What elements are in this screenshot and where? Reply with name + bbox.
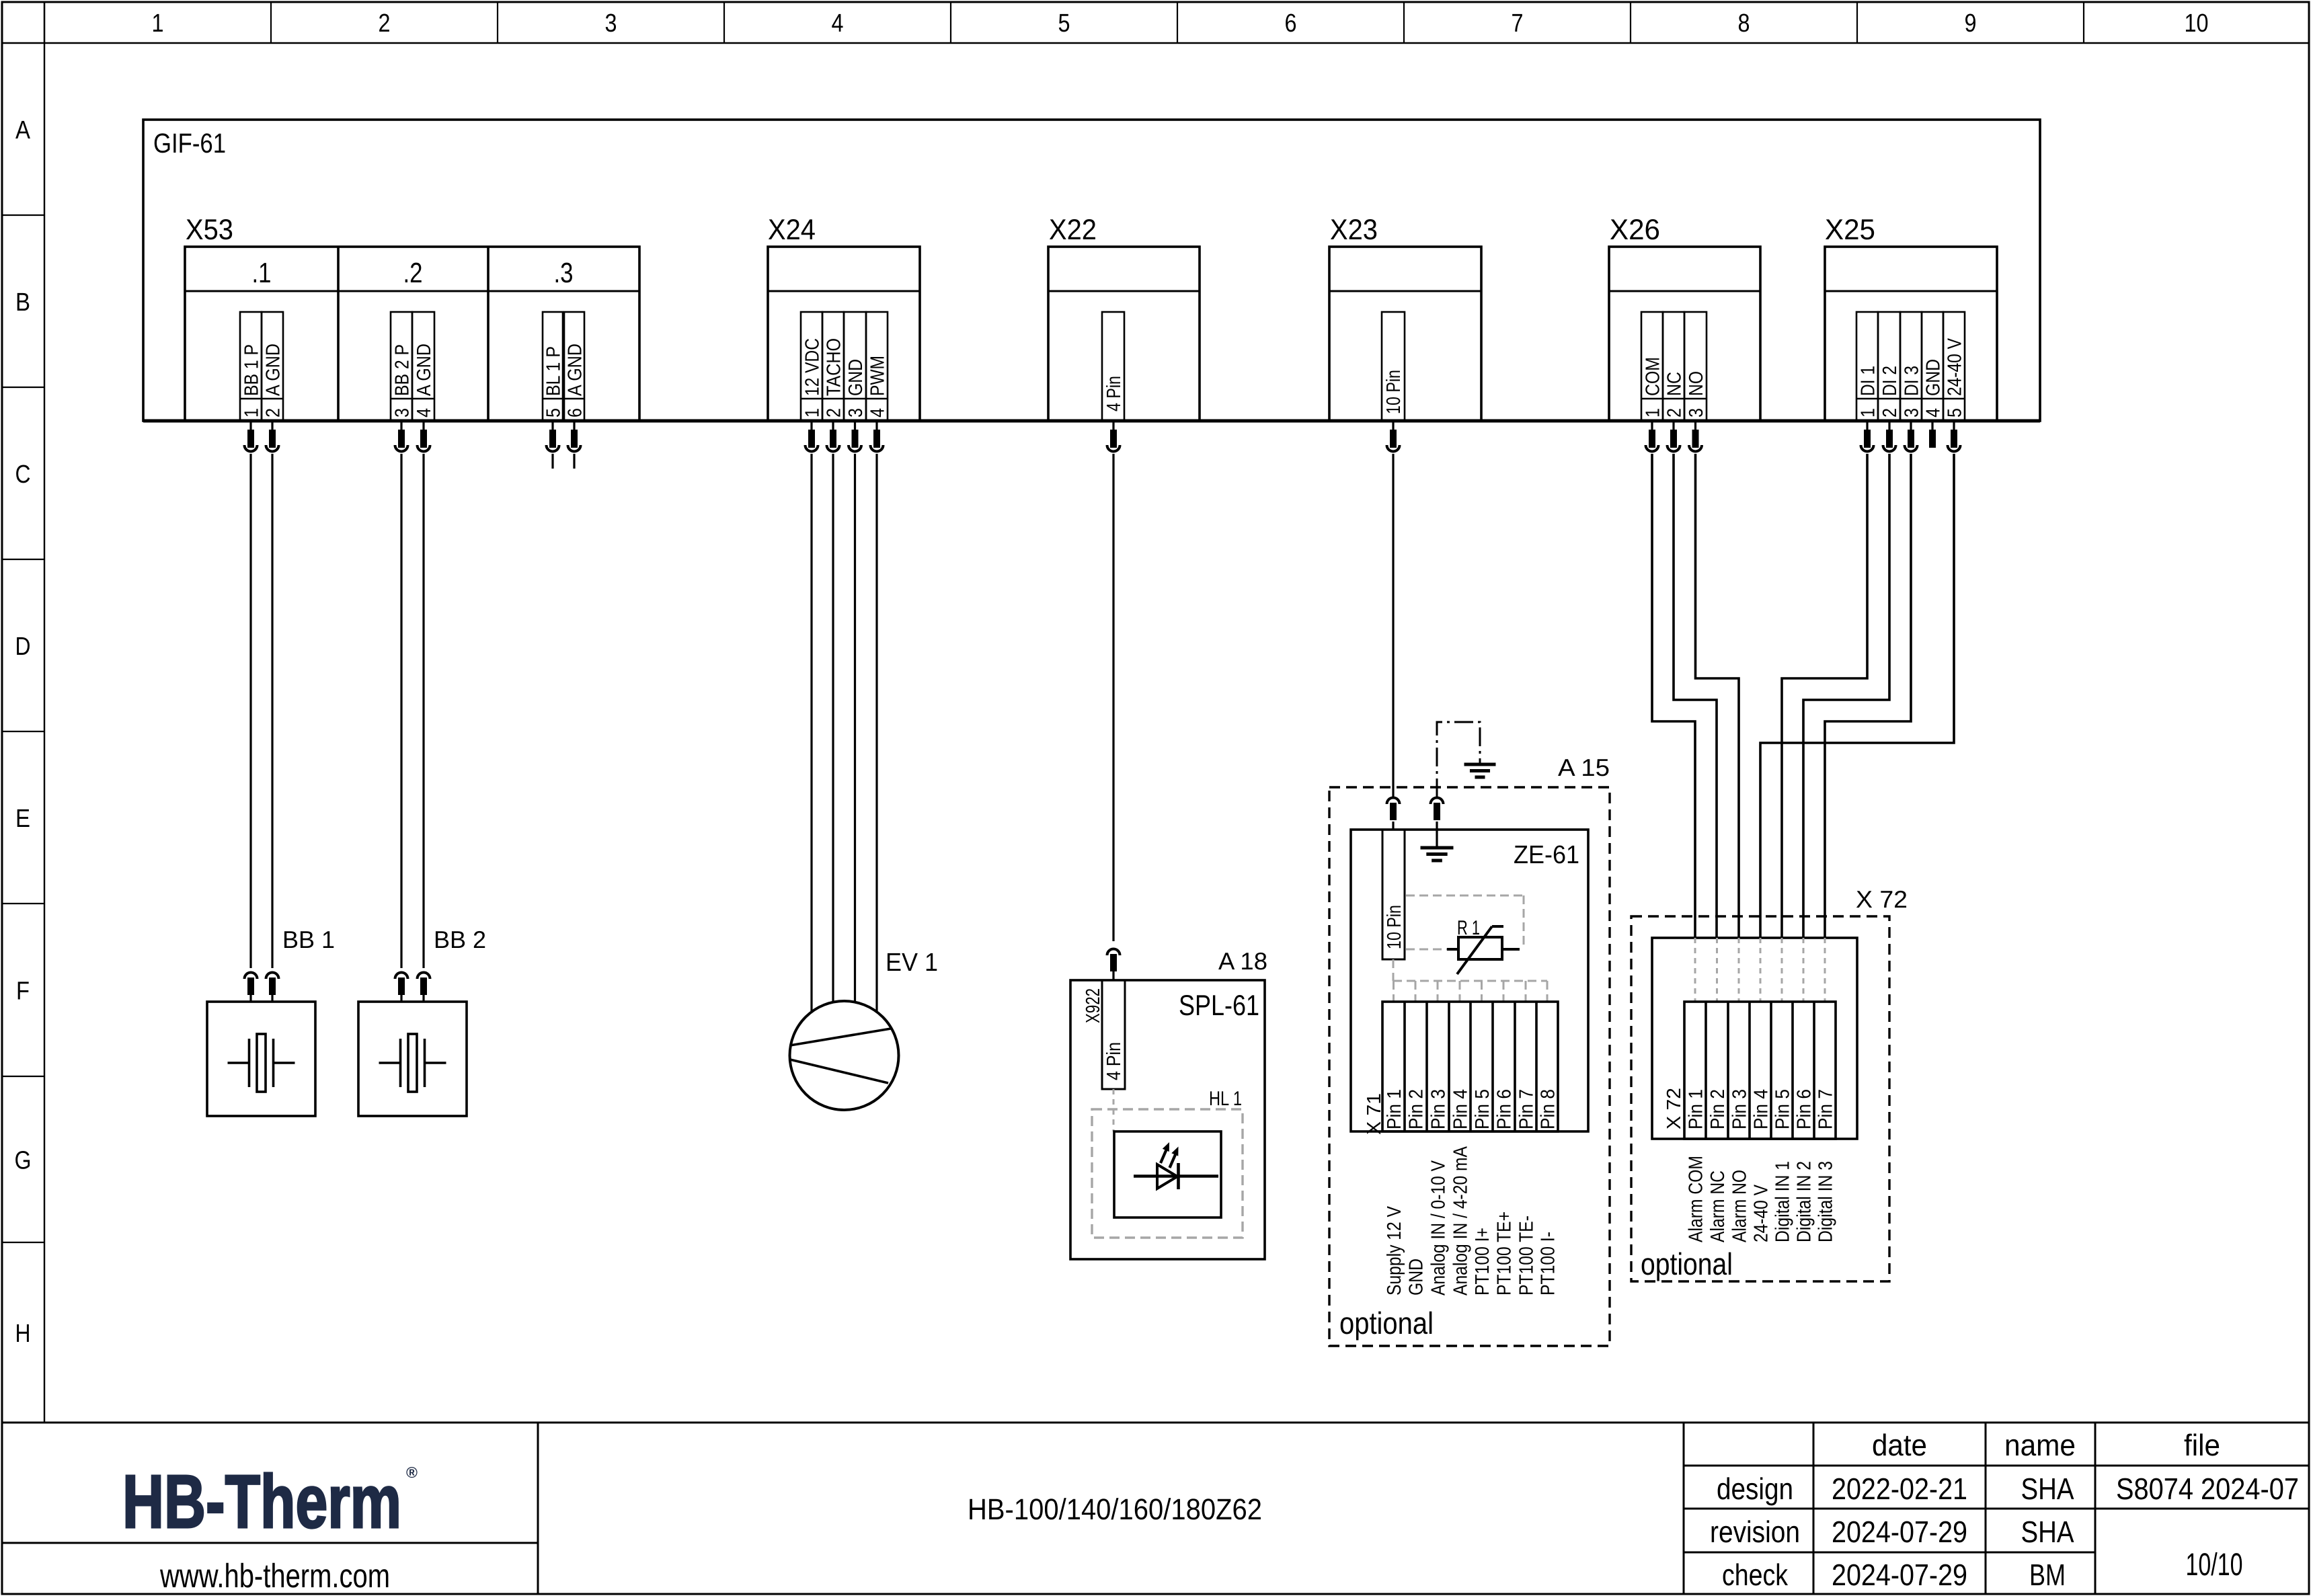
svg-text:DI 2: DI 2 — [1879, 366, 1901, 396]
svg-text:NO: NO — [1686, 371, 1707, 396]
svg-text:4 Pin: 4 Pin — [1103, 1042, 1125, 1080]
svg-text:Analog IN / 0-10 V: Analog IN / 0-10 V — [1428, 1160, 1450, 1295]
svg-text:Pin 1: Pin 1 — [1384, 1089, 1405, 1129]
svg-text:8: 8 — [1738, 9, 1750, 38]
svg-text:12 VDC: 12 VDC — [802, 338, 824, 396]
svg-text:2024-07-29: 2024-07-29 — [1832, 1515, 1967, 1549]
svg-text:7: 7 — [1512, 9, 1524, 38]
svg-text:BB 1: BB 1 — [282, 926, 335, 953]
svg-text:B: B — [15, 288, 30, 317]
svg-text:optional: optional — [1641, 1246, 1733, 1281]
svg-text:F: F — [16, 977, 30, 1006]
svg-text:4: 4 — [1923, 408, 1945, 417]
svg-text:file: file — [2184, 1428, 2220, 1462]
svg-text:Alarm NC: Alarm NC — [1707, 1170, 1729, 1242]
svg-text:S8074 2024-07: S8074 2024-07 — [2116, 1472, 2299, 1506]
svg-text:C: C — [15, 461, 31, 489]
svg-text:X 71: X 71 — [1364, 1093, 1385, 1135]
svg-text:X22: X22 — [1049, 214, 1097, 246]
svg-text:1: 1 — [802, 408, 824, 417]
svg-text:1: 1 — [241, 408, 263, 417]
svg-text:date: date — [1872, 1428, 1927, 1462]
svg-text:ZE-61: ZE-61 — [1514, 841, 1579, 869]
svg-text:2: 2 — [1664, 408, 1686, 417]
svg-text:Analog IN / 4-20 mA: Analog IN / 4-20 mA — [1450, 1146, 1472, 1295]
svg-text:design: design — [1717, 1472, 1793, 1506]
svg-text:3: 3 — [1902, 408, 1923, 417]
svg-text:1: 1 — [1858, 408, 1879, 417]
svg-text:10 Pin: 10 Pin — [1384, 905, 1405, 949]
svg-text:4: 4 — [414, 408, 435, 417]
svg-text:name: name — [2004, 1428, 2076, 1462]
svg-text:GIF-61: GIF-61 — [153, 128, 226, 159]
svg-text:HB-Therm: HB-Therm — [122, 1460, 401, 1544]
svg-text:10 Pin: 10 Pin — [1383, 370, 1405, 414]
svg-text:DI 1: DI 1 — [1858, 366, 1879, 396]
svg-text:BB 1 P: BB 1 P — [241, 344, 263, 396]
svg-text:2022-02-21: 2022-02-21 — [1832, 1472, 1967, 1506]
svg-text:SHA: SHA — [2021, 1515, 2074, 1549]
svg-text:1: 1 — [1643, 408, 1664, 417]
svg-text:Alarm NO: Alarm NO — [1729, 1170, 1751, 1242]
svg-text:Digital IN 2: Digital IN 2 — [1794, 1161, 1815, 1242]
svg-text:®: ® — [406, 1464, 418, 1481]
svg-text:24-40 V: 24-40 V — [1945, 337, 1966, 396]
svg-text:Pin 6: Pin 6 — [1794, 1089, 1815, 1129]
svg-text:Pin 1: Pin 1 — [1686, 1089, 1707, 1129]
svg-text:.2: .2 — [403, 257, 423, 288]
svg-text:24-40 V: 24-40 V — [1751, 1184, 1772, 1242]
svg-text:GND: GND — [845, 359, 867, 396]
svg-text:www.hb-therm.com: www.hb-therm.com — [159, 1557, 390, 1595]
svg-text:X 72: X 72 — [1856, 885, 1908, 913]
svg-text:X26: X26 — [1610, 214, 1660, 246]
svg-text:6: 6 — [565, 408, 586, 417]
svg-text:X24: X24 — [768, 214, 816, 246]
svg-text:G: G — [15, 1147, 32, 1175]
svg-text:2: 2 — [379, 9, 391, 38]
svg-text:10: 10 — [2185, 9, 2209, 38]
svg-text:.3: .3 — [554, 257, 574, 288]
svg-text:3: 3 — [845, 408, 867, 417]
svg-text:NC: NC — [1664, 372, 1686, 396]
svg-text:EV 1: EV 1 — [886, 949, 938, 977]
svg-text:A GND: A GND — [263, 344, 284, 396]
svg-text:4 Pin: 4 Pin — [1103, 376, 1125, 411]
svg-text:GND: GND — [1923, 359, 1945, 396]
svg-text:BM: BM — [2029, 1558, 2066, 1592]
svg-text:Digital IN 3: Digital IN 3 — [1815, 1161, 1837, 1242]
svg-text:TACHO: TACHO — [824, 338, 845, 396]
svg-text:GND: GND — [1406, 1259, 1427, 1295]
svg-text:4: 4 — [832, 9, 844, 38]
svg-text:PT100 TE-: PT100 TE- — [1516, 1215, 1538, 1295]
svg-text:A GND: A GND — [414, 344, 435, 396]
svg-text:Pin 3: Pin 3 — [1729, 1089, 1751, 1129]
svg-text:PT100 I-: PT100 I- — [1538, 1232, 1559, 1295]
svg-text:Pin 5: Pin 5 — [1772, 1089, 1794, 1129]
svg-text:3: 3 — [392, 408, 414, 417]
svg-text:Pin 7: Pin 7 — [1516, 1089, 1538, 1129]
svg-text:SHA: SHA — [2021, 1472, 2074, 1506]
svg-text:Pin 4: Pin 4 — [1751, 1089, 1772, 1129]
svg-text:D: D — [15, 633, 31, 661]
svg-text:A GND: A GND — [565, 344, 586, 396]
svg-text:BB 2 P: BB 2 P — [392, 344, 414, 396]
svg-text:Pin 2: Pin 2 — [1406, 1089, 1427, 1129]
svg-text:9: 9 — [1965, 9, 1977, 38]
svg-text:2: 2 — [1879, 408, 1901, 417]
svg-text:PT100 TE+: PT100 TE+ — [1494, 1211, 1516, 1295]
svg-text:BL 1 P: BL 1 P — [543, 346, 565, 396]
svg-text:HB-100/140/160/180Z62: HB-100/140/160/180Z62 — [968, 1493, 1262, 1526]
svg-text:BB 2: BB 2 — [434, 926, 486, 953]
svg-text:Pin 5: Pin 5 — [1472, 1089, 1493, 1129]
svg-text:A 15: A 15 — [1558, 754, 1610, 781]
svg-text:X53: X53 — [186, 214, 233, 246]
svg-text:X23: X23 — [1330, 214, 1378, 246]
svg-text:A 18: A 18 — [1218, 947, 1267, 975]
svg-text:4: 4 — [867, 408, 889, 417]
svg-text:PWM: PWM — [867, 356, 889, 396]
svg-text:Pin 2: Pin 2 — [1707, 1089, 1729, 1129]
svg-text:Pin 6: Pin 6 — [1494, 1089, 1516, 1129]
svg-text:6: 6 — [1285, 9, 1297, 38]
svg-text:2: 2 — [824, 408, 845, 417]
svg-text:2024-07-29: 2024-07-29 — [1832, 1558, 1967, 1592]
svg-text:3: 3 — [605, 9, 617, 38]
svg-text:COM: COM — [1643, 357, 1664, 396]
svg-text:SPL-61: SPL-61 — [1179, 990, 1259, 1022]
svg-text:check: check — [1722, 1558, 1788, 1592]
svg-text:X25: X25 — [1825, 214, 1875, 246]
svg-text:Pin 8: Pin 8 — [1538, 1089, 1559, 1129]
svg-text:5: 5 — [1058, 9, 1070, 38]
svg-text:PT100 I+: PT100 I+ — [1472, 1228, 1493, 1295]
svg-text:2: 2 — [263, 408, 284, 417]
svg-text:Pin 4: Pin 4 — [1450, 1089, 1472, 1129]
svg-text:5: 5 — [1945, 408, 1966, 417]
svg-text:X922: X922 — [1083, 988, 1104, 1023]
svg-text:.1: .1 — [252, 257, 272, 288]
svg-text:3: 3 — [1686, 408, 1707, 417]
svg-text:optional: optional — [1339, 1306, 1434, 1341]
svg-text:Pin 7: Pin 7 — [1815, 1089, 1837, 1129]
svg-text:Digital IN 1: Digital IN 1 — [1772, 1161, 1794, 1242]
svg-text:H: H — [15, 1320, 31, 1348]
svg-text:10/10: 10/10 — [2186, 1546, 2243, 1582]
svg-text:Supply 12 V: Supply 12 V — [1384, 1205, 1405, 1295]
svg-text:DI 3: DI 3 — [1902, 366, 1923, 396]
svg-text:A: A — [15, 116, 31, 145]
svg-text:5: 5 — [543, 408, 565, 417]
svg-text:Alarm COM: Alarm COM — [1686, 1156, 1707, 1242]
svg-text:X 72: X 72 — [1663, 1088, 1685, 1129]
svg-text:revision: revision — [1710, 1515, 1800, 1549]
svg-text:Pin 3: Pin 3 — [1428, 1089, 1450, 1129]
svg-text:E: E — [15, 805, 30, 833]
svg-text:HL 1: HL 1 — [1209, 1088, 1242, 1110]
svg-text:1: 1 — [152, 9, 164, 38]
